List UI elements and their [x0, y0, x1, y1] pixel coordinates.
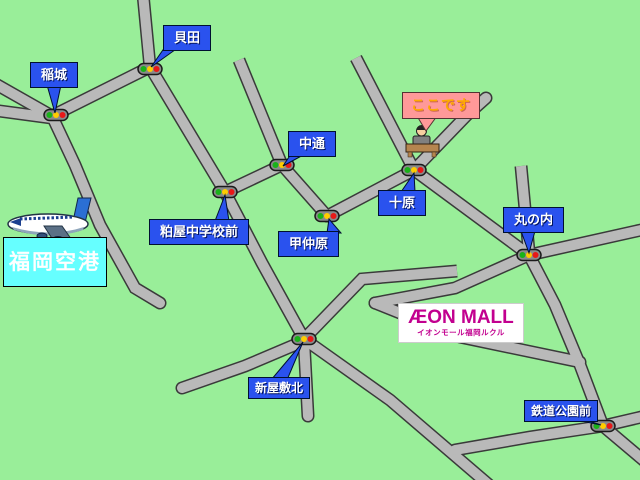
traffic-light-icon: [44, 110, 68, 121]
callout-inagi: 稲城: [30, 62, 78, 88]
map-canvas: { "map": { "callouts": { "inagi": "稲城", …: [0, 0, 640, 480]
callout-here: ここです: [402, 92, 480, 119]
traffic-light-icon: [315, 211, 339, 222]
traffic-light-icon: [138, 64, 162, 75]
traffic-light-icon: [292, 334, 316, 345]
callout-kasuya-jhs-mae: 粕屋中学校前: [149, 219, 249, 245]
aeon-mall-logo-subtext: イオンモール福岡ルクル: [399, 328, 523, 337]
airport-sign: 福岡空港: [3, 237, 107, 287]
aeon-mall-logo-text: ÆON MALL: [399, 307, 523, 328]
aeon-mall-sign: ÆON MALL イオンモール福岡ルクル: [398, 303, 524, 343]
callout-kaida: 貝田: [163, 25, 211, 51]
callout-tetsudo-koen-mae: 鉄道公園前: [524, 400, 598, 422]
callout-nakadori: 中通: [288, 131, 336, 157]
callout-marunouchi: 丸の内: [503, 207, 564, 233]
callout-shinyashiki-kita: 新屋敷北: [248, 377, 310, 399]
callout-konakabaru: 甲仲原: [278, 231, 339, 257]
callout-juhara: 十原: [378, 190, 426, 216]
